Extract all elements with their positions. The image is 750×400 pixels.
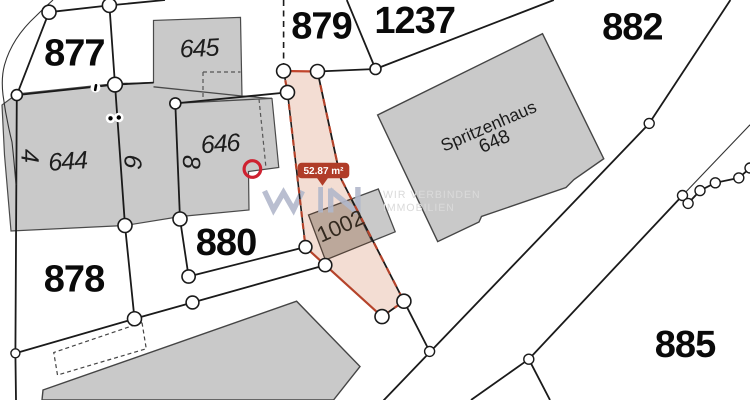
svg-text:646: 646 <box>200 129 242 160</box>
svg-text:WIR VERBINDEN: WIR VERBINDEN <box>383 189 481 201</box>
svg-text:879: 879 <box>291 6 351 48</box>
svg-text:IMMOBILIEN: IMMOBILIEN <box>383 202 455 214</box>
svg-text:877: 877 <box>44 32 104 74</box>
svg-text:878: 878 <box>44 259 104 301</box>
svg-text:52.87 m²: 52.87 m² <box>303 166 344 177</box>
svg-text:882: 882 <box>602 7 662 49</box>
svg-text:644: 644 <box>47 146 88 177</box>
svg-text:1237: 1237 <box>374 0 455 42</box>
svg-text:885: 885 <box>655 324 716 366</box>
svg-text:8: 8 <box>177 155 205 169</box>
svg-text:4: 4 <box>16 149 44 162</box>
svg-text:880: 880 <box>196 222 256 264</box>
svg-text:645: 645 <box>179 33 220 63</box>
